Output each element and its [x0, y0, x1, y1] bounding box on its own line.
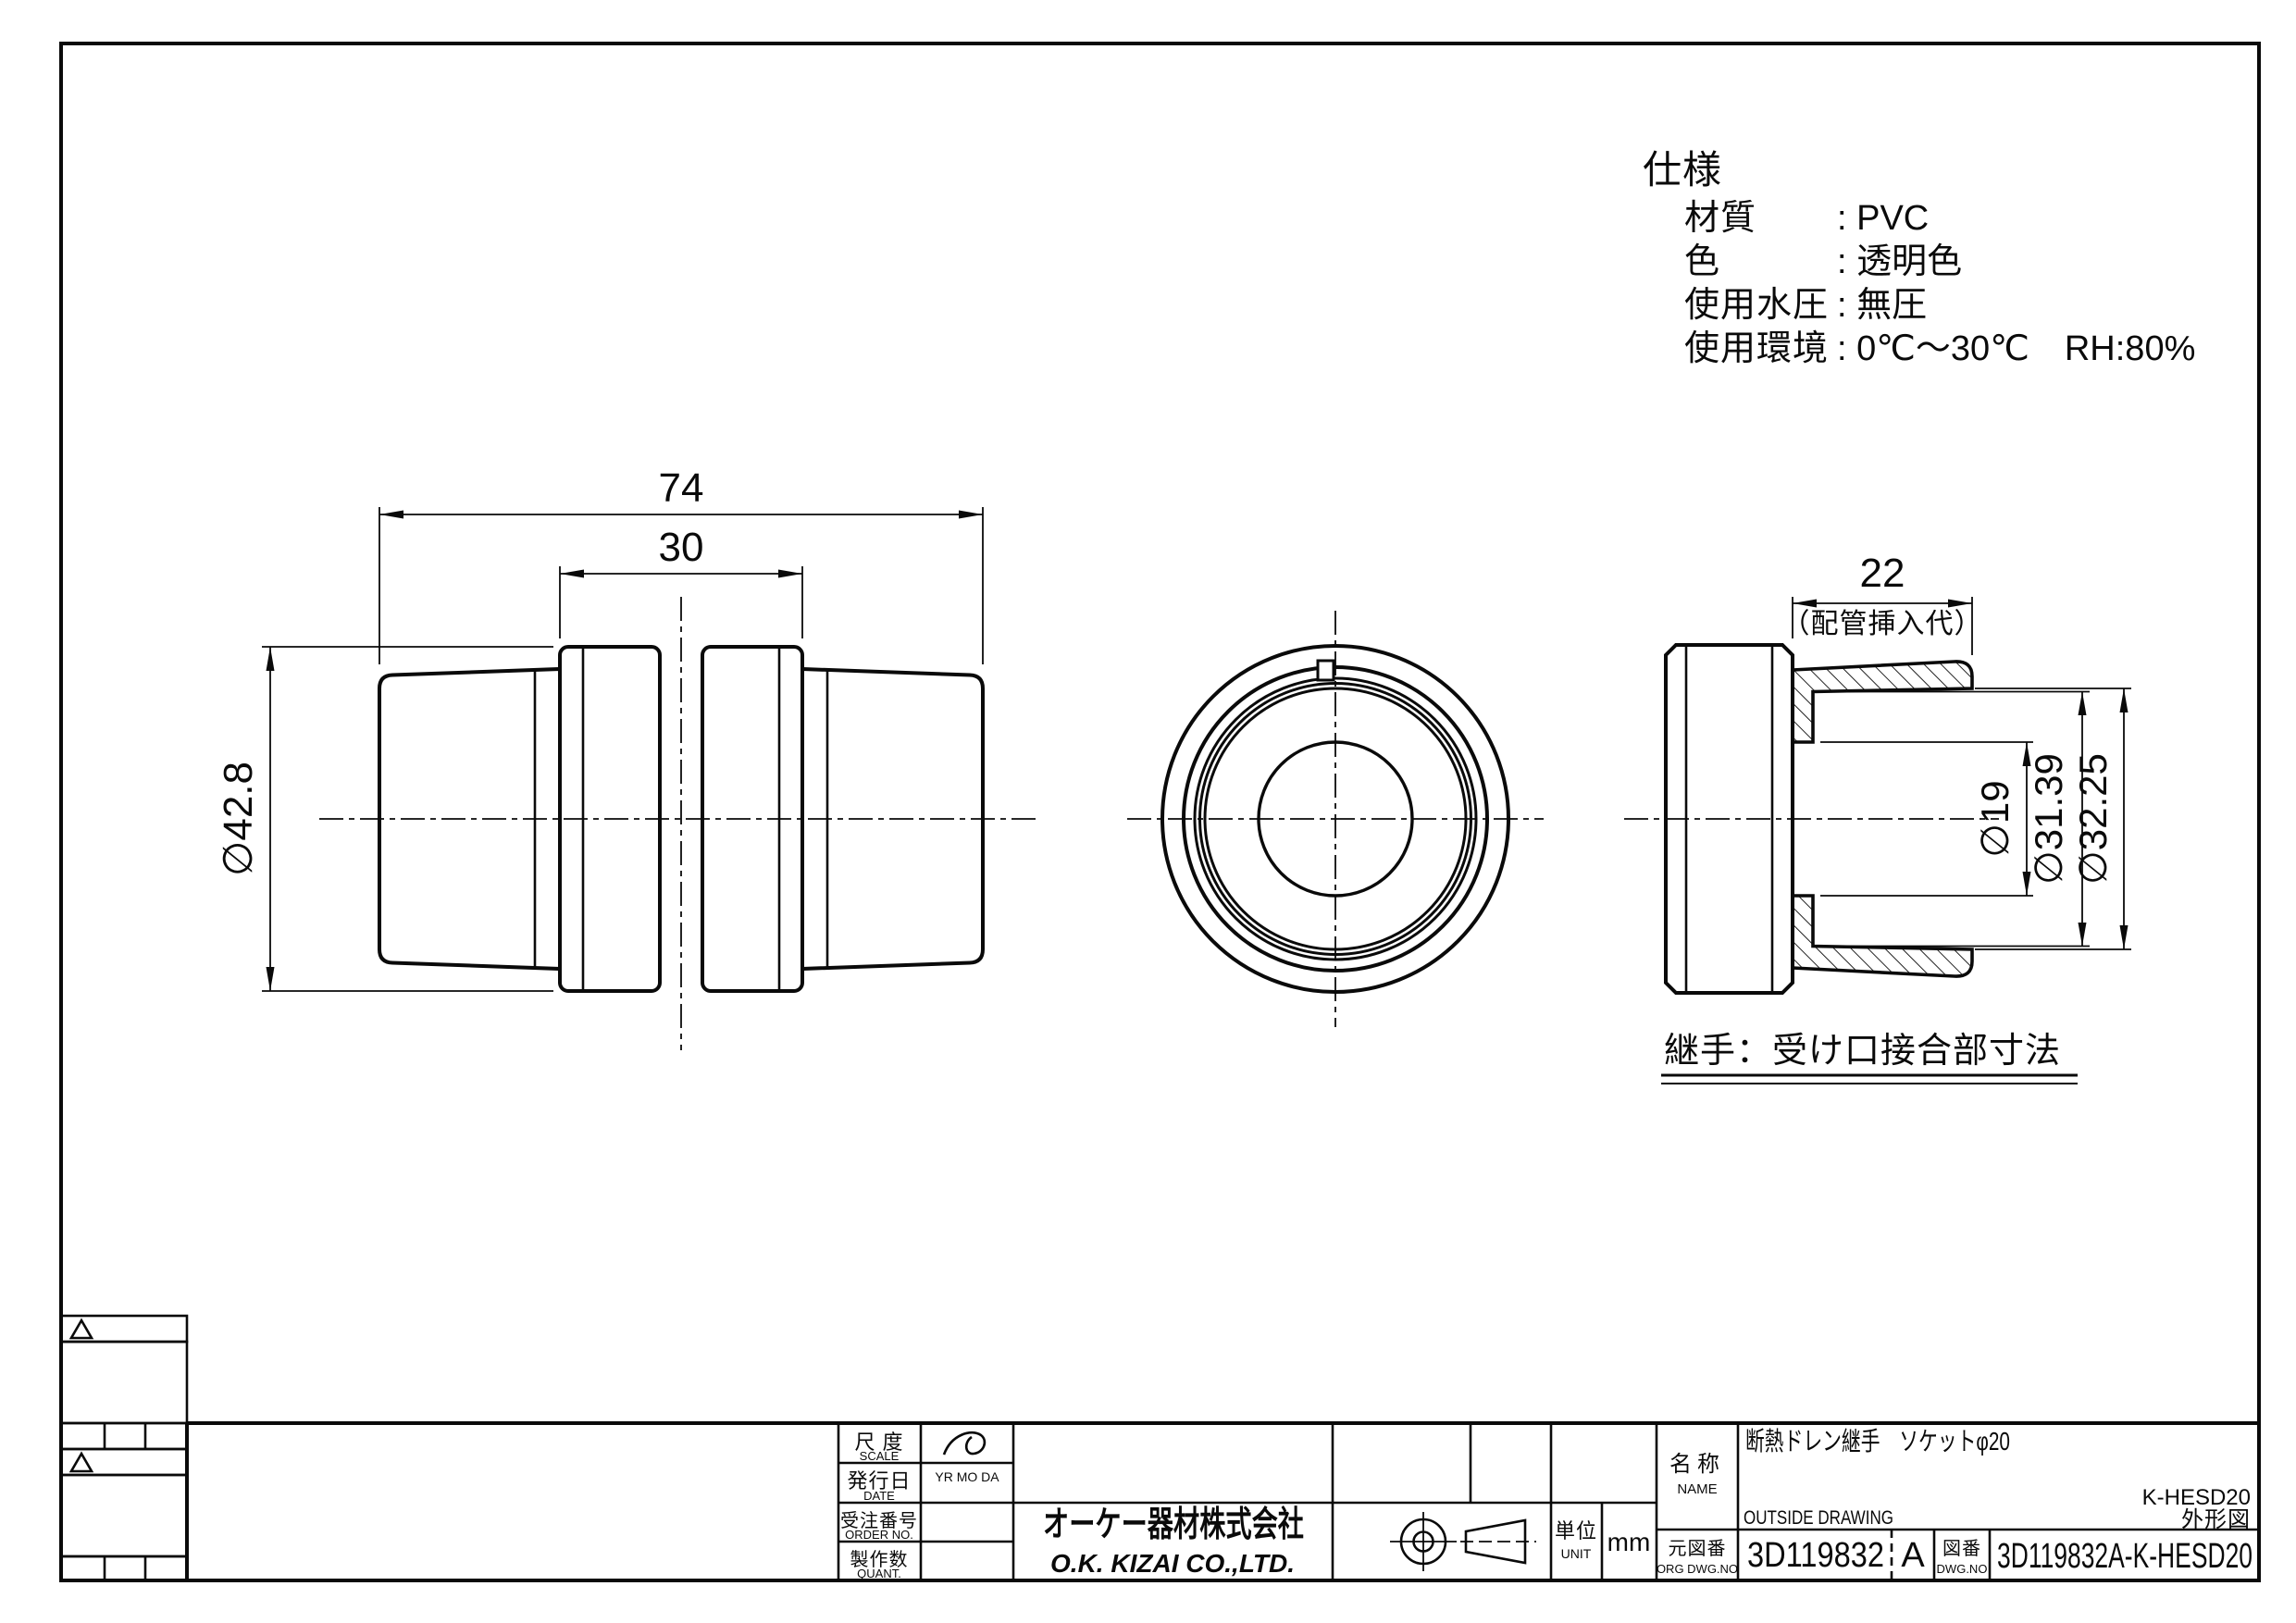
- spec-label-material: 材質: [1684, 199, 1756, 238]
- dia3139-arrow-bottom: [2079, 923, 2087, 947]
- dwg-label-en: DWG.NO: [1937, 1562, 1988, 1576]
- revision2-sign-row: [61, 1556, 187, 1580]
- unit-label-jp: 単位: [1555, 1519, 1597, 1542]
- spec-block: 仕様 材質 : PVC 色 : 透明色 使用水圧 : 無圧 使用環境 : 0℃～…: [1643, 148, 2195, 368]
- dim-hub-width: 30: [659, 525, 704, 570]
- dim22-arrow-left: [1793, 600, 1817, 608]
- end-view: [1127, 611, 1544, 1027]
- spec-value-material: : PVC: [1837, 199, 1929, 238]
- model-code: K-HESD20: [2142, 1485, 2251, 1510]
- dwg-label-jp: 図番: [1942, 1538, 1981, 1559]
- name-label-jp: 名称: [1669, 1452, 1725, 1477]
- org-dwg-label-en: ORG DWG.NO: [1657, 1562, 1738, 1576]
- dim-socket-back-diameter: ∅31.39: [2027, 753, 2070, 885]
- scale-value-mark: [944, 1432, 985, 1455]
- spec-label-pressure: 使用水圧: [1684, 286, 1829, 325]
- name-label-en: NAME: [1677, 1481, 1717, 1497]
- dim74-arrow-right: [959, 511, 983, 519]
- cad-drawing: 仕様 材質 : PVC 色 : 透明色 使用水圧 : 無圧 使用環境 : 0℃～…: [0, 0, 2296, 1623]
- dia3225-arrow-top: [2120, 688, 2128, 712]
- section-view: ∅19 ∅31.39 ∅32.25 22 （配管挿入代） 継手：受け口接合部寸法: [1624, 551, 2131, 1084]
- drawing-sheet: 仕様 材質 : PVC 色 : 透明色 使用水圧 : 無圧 使用環境 : 0℃～…: [0, 0, 2296, 1623]
- spec-label-color: 色: [1684, 242, 1720, 281]
- parting-tab-mark: [1318, 661, 1334, 680]
- front-view: 74 30 ∅42.8: [216, 465, 1041, 1050]
- section-caption: 継手：受け口接合部寸法: [1664, 1032, 2061, 1071]
- unit-value: mm: [1607, 1528, 1651, 1556]
- socket-wall-bottom-section: [1793, 896, 1972, 976]
- drawing-kind-jp: 外形図: [2181, 1507, 2251, 1532]
- revision-letter: A: [1901, 1536, 1925, 1575]
- dim-insertion-note: （配管挿入代）: [1782, 609, 1983, 639]
- company-name-en: O.K. KIZAI CO.,LTD.: [1050, 1549, 1295, 1578]
- dim-outer-diameter: ∅42.8: [216, 762, 261, 876]
- date-columns-header: YR MO DA: [935, 1469, 999, 1484]
- qty-label-en: QUANT.: [857, 1567, 901, 1580]
- dim74-arrow-left: [379, 511, 403, 519]
- dim-socket-mouth-diameter: ∅32.25: [2071, 753, 2115, 885]
- spec-value-environment: : 0℃～30℃ RH:80%: [1837, 329, 2195, 368]
- dim-overall-length: 74: [659, 465, 704, 511]
- scale-label-en: SCALE: [860, 1449, 900, 1463]
- unit-label-en: UNIT: [1561, 1546, 1592, 1561]
- socket-wall-top-section: [1793, 662, 1972, 742]
- revision1-note-box: [61, 1342, 187, 1423]
- dim428-arrow-bottom: [267, 967, 275, 991]
- spec-value-pressure: : 無圧: [1837, 286, 1927, 325]
- revision2-note-box: [61, 1475, 187, 1556]
- dia3139-arrow-top: [2079, 692, 2087, 716]
- drawing-type-label: OUTSIDE DRAWING: [1744, 1507, 1893, 1529]
- dim30-arrow-right: [778, 570, 802, 578]
- dim22-arrow-right: [1948, 600, 1972, 608]
- spec-title: 仕様: [1643, 148, 1722, 192]
- company-name-jp: オーケー器材株式会社: [1043, 1505, 1304, 1544]
- dim428-arrow-top: [267, 647, 275, 671]
- date-label-en: DATE: [863, 1489, 895, 1503]
- revision2-triangle-icon: [71, 1454, 92, 1471]
- spec-value-color: : 透明色: [1837, 242, 1962, 281]
- dia3225-arrow-bottom: [2120, 925, 2128, 949]
- org-dwg-number: 3D119832: [1747, 1536, 1884, 1575]
- dim30-arrow-left: [560, 570, 584, 578]
- revision1-triangle-icon: [71, 1320, 92, 1338]
- dim-insertion-depth: 22: [1860, 551, 1905, 596]
- revision1-sign-row: [61, 1423, 187, 1449]
- revision-blocks: [61, 1316, 187, 1580]
- org-dwg-label-jp: 元図番: [1669, 1538, 1727, 1559]
- part-name-value: 断熱ドレン継手 ソケットφ20: [1745, 1427, 2010, 1456]
- order-label-en: ORDER NO.: [845, 1528, 913, 1542]
- title-block: 尺 度 SCALE 発行日 DATE YR MO DA 受注番号 ORDER N…: [187, 1423, 2259, 1580]
- dim-bore-diameter: ∅19: [1973, 780, 2017, 857]
- dwg-number: 3D119832A-K-HESD20: [1997, 1537, 2253, 1576]
- spec-label-environment: 使用環境: [1684, 329, 1829, 368]
- first-angle-projection-icon: [1390, 1512, 1536, 1571]
